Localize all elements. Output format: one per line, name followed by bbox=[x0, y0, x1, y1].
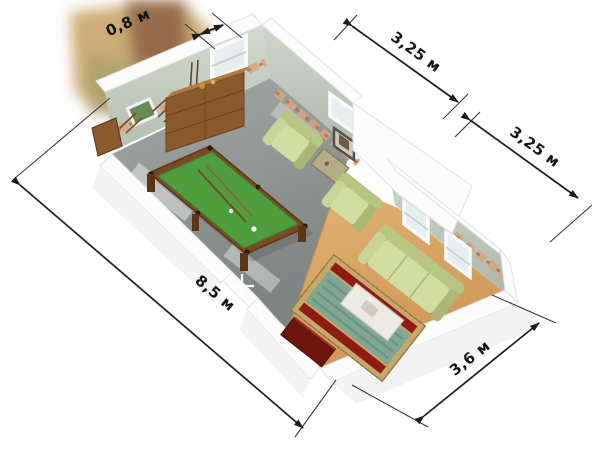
billiard-ball-2 bbox=[229, 209, 233, 213]
dimension-3-25-right: 3,25 м bbox=[455, 112, 592, 242]
billiard-ball bbox=[251, 226, 256, 231]
corner-cabinet bbox=[92, 118, 122, 156]
dim-label-3-25-top: 3,25 м bbox=[387, 28, 444, 76]
dim-label-3-25-right: 3,25 м bbox=[506, 123, 563, 171]
floor-plan-svg: 0,8 м 3,25 м 3,25 м 8,5 м 3,6 м bbox=[0, 0, 600, 452]
floor-plan-figure: 0,8 м 3,25 м 3,25 м 8,5 м 3,6 м bbox=[0, 0, 600, 452]
door-sparkle-center bbox=[239, 283, 245, 289]
